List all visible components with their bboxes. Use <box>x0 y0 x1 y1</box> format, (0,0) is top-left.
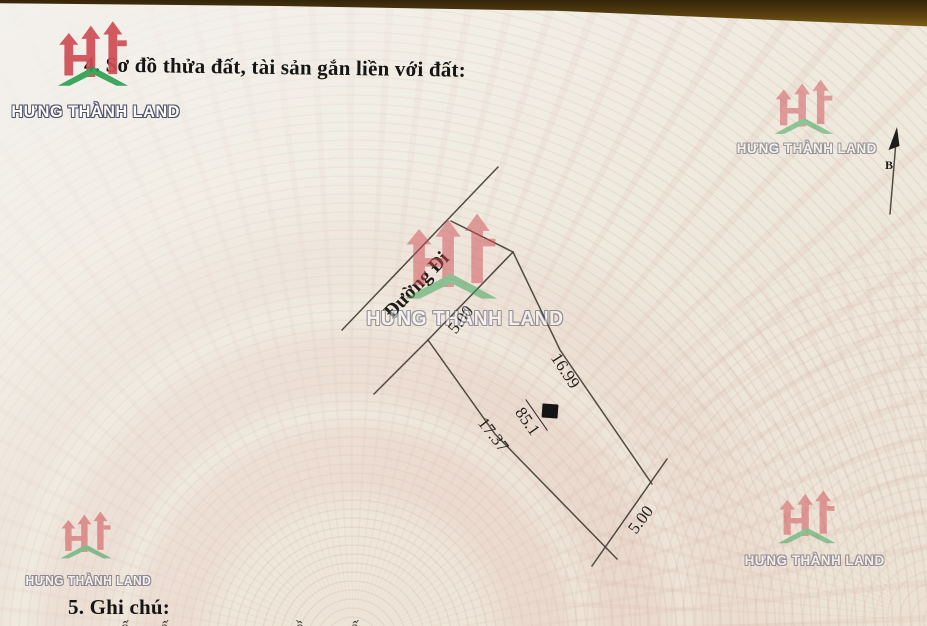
parcel-left-edge <box>428 340 617 559</box>
watermark-brand-text: HƯNG THÀNH LAND <box>367 308 535 331</box>
ht-buildings-icon <box>771 484 843 552</box>
north-label: B <box>885 158 893 173</box>
watermark-brand-text: HƯNG THÀNH LAND <box>737 140 871 156</box>
watermark-brand-text: HƯNG THÀNH LAND <box>26 574 146 588</box>
certificate-photo-page: 4. Sơ đồ thửa đất, tài sản gắn liền với … <box>0 0 927 626</box>
ht-buildings-icon <box>54 498 118 574</box>
watermark-logo-top-right: HƯNG THÀNH LAND <box>734 76 874 156</box>
watermark-brand-text: HƯNG THÀNH LAND <box>11 102 174 122</box>
watermark-brand-text: HƯNG THÀNH LAND <box>745 552 870 568</box>
ht-buildings-icon <box>767 76 841 140</box>
watermark-logo-top-left: HƯNG THÀNH LAND <box>8 8 178 122</box>
watermark-logo-center: HƯNG THÀNH LAND <box>363 208 538 331</box>
ht-buildings-icon <box>49 8 137 102</box>
redaction-box <box>542 403 559 418</box>
ht-buildings-icon <box>393 208 509 308</box>
watermark-logo-bottom-left: HƯNG THÀNH LAND <box>23 498 148 588</box>
watermark-logo-bottom-right: HƯNG THÀNH LAND <box>742 484 872 568</box>
